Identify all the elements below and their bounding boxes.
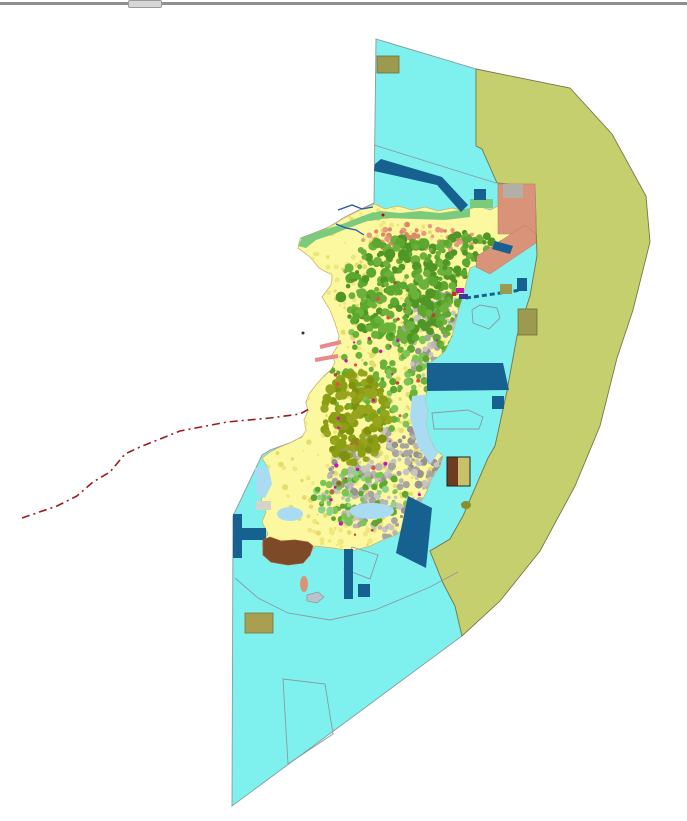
lagoon-south-2 bbox=[277, 507, 303, 521]
pier-strip-south bbox=[344, 549, 353, 599]
khaki-parcel-south bbox=[245, 613, 273, 633]
green-parcel-ne bbox=[470, 199, 493, 208]
blue-sq-east bbox=[517, 278, 527, 291]
window-top-edge bbox=[0, 2, 687, 5]
red-marker-dot bbox=[382, 214, 385, 217]
facility-khaki-half bbox=[458, 457, 470, 486]
khaki-parcel-east bbox=[518, 309, 537, 335]
khaki-parcel-north bbox=[377, 56, 399, 73]
t-pier-horizontal bbox=[242, 528, 266, 540]
khaki-sq-east bbox=[500, 284, 512, 294]
t-pier-vertical bbox=[233, 514, 242, 558]
facility-brown-half bbox=[447, 457, 458, 486]
terminal-red bbox=[452, 292, 456, 296]
salmon-islet bbox=[300, 576, 308, 592]
harbor-rect-n bbox=[474, 189, 486, 200]
map-canvas[interactable] bbox=[0, 6, 687, 821]
olive-islet bbox=[461, 501, 471, 509]
gray-blob-ne bbox=[503, 184, 523, 198]
harbor-band-east bbox=[427, 363, 509, 391]
screen bbox=[0, 0, 687, 821]
harbor-sq-east bbox=[492, 396, 504, 409]
pier-sq-south bbox=[358, 584, 370, 597]
terminal-magenta bbox=[456, 288, 464, 293]
lagoon-south-1 bbox=[350, 503, 394, 519]
terminal-blue bbox=[459, 294, 468, 299]
west-flat-patch bbox=[256, 501, 271, 510]
dark-marker-dot bbox=[302, 332, 305, 335]
